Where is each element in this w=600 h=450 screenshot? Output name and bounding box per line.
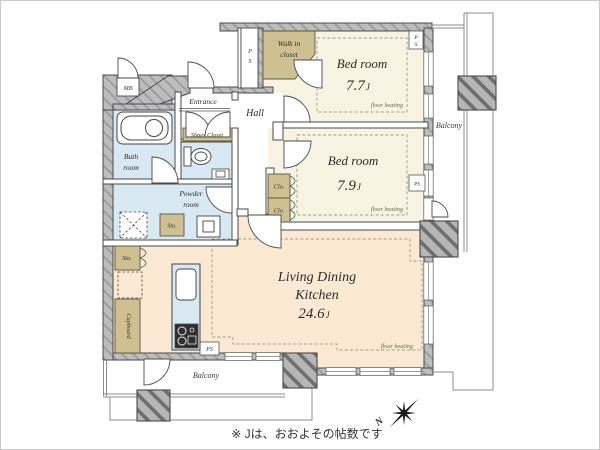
wall-hall-left xyxy=(232,128,238,245)
wall-hall-bedrooms xyxy=(273,122,283,140)
pillar-right-top xyxy=(458,76,496,110)
stove-icon xyxy=(175,324,198,348)
powder-room-label-line2: room xyxy=(183,200,199,209)
shoes-closet-label: Shoes Closet xyxy=(191,132,224,139)
balcony-label-bottom: Balcony xyxy=(193,371,220,380)
washing-machine-space xyxy=(120,212,147,238)
wall-hall-left-stub xyxy=(232,92,238,100)
pipe-shaft-label-p: P xyxy=(247,49,252,55)
bath-room-label-line1: Bath xyxy=(124,152,138,161)
wall-powder-bottom xyxy=(103,240,237,246)
closet-label-1: Clo. xyxy=(274,184,285,191)
wall-entrance-left xyxy=(175,92,181,184)
ps-label-bedroom1-s: S xyxy=(415,42,418,48)
wall-bedroom-divider xyxy=(283,122,428,128)
hall-label: Hall xyxy=(245,108,264,119)
wall-bath-top xyxy=(113,104,181,110)
pillar-right-mid xyxy=(420,221,458,257)
entrance-label: Entrance xyxy=(188,97,217,106)
walk-in-closet-label-line2: closet xyxy=(280,50,298,59)
washbasin-icon xyxy=(197,216,220,237)
ps-label-kitchen: PS xyxy=(205,347,213,353)
closet-label-2: Clo. xyxy=(274,208,285,215)
wall-bedroom2-ldk xyxy=(266,222,428,230)
balcony-label-right: Balcony xyxy=(436,121,463,130)
wall-hall-bottom xyxy=(237,209,248,216)
bedroom1-label: Bed room xyxy=(337,56,387,71)
cupboard-label: Cupboard xyxy=(125,313,132,339)
pillar-bottom-left xyxy=(137,390,170,421)
floor-heating-label-ldk: floor heating xyxy=(381,343,413,350)
floor-plan-svg: Bed room 7.7J Bed room 7.9J Living Dinin… xyxy=(0,0,600,450)
wall-left xyxy=(103,75,113,360)
pillar-bottom-right xyxy=(283,353,317,388)
toilet-sink-icon xyxy=(212,169,229,179)
footnote: ※ Jは、おおよその帖数です xyxy=(231,426,382,441)
storage-label-2: Sto. xyxy=(122,255,132,262)
powder-room-label-line1: Powder xyxy=(178,189,202,198)
floor-heating-label-bedroom2: floor heating xyxy=(371,206,403,213)
ldk-label-line1: Living Dining xyxy=(277,270,356,285)
ps-label-bedroom2: PS xyxy=(413,182,420,188)
kitchen-sink-icon xyxy=(176,269,196,300)
kitchen-counter xyxy=(172,264,200,350)
mb-label: MB xyxy=(122,85,132,92)
shaft-wall xyxy=(258,28,263,88)
pipe-shaft-label-s: S xyxy=(249,59,252,65)
toilet-icon xyxy=(184,147,211,166)
bathtub-icon xyxy=(117,112,172,144)
bath-room-label-line2: room xyxy=(123,163,139,172)
walk-in-closet-label-line1: Walk in xyxy=(278,39,301,48)
pipe-shaft xyxy=(241,28,258,88)
storage-label-1: Sto. xyxy=(167,223,177,230)
floor-plan-image: Bed room 7.7J Bed room 7.9J Living Dinin… xyxy=(0,0,600,450)
floor-heating-label-bedroom1: floor heating xyxy=(371,102,403,109)
ldk-label-line2: Kitchen xyxy=(294,288,339,303)
bedroom2-label: Bed room xyxy=(328,153,378,168)
